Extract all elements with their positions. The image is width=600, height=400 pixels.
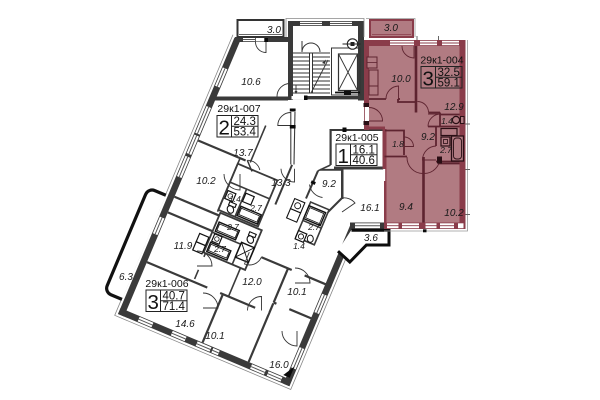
svg-text:2.7: 2.7 — [439, 145, 452, 155]
svg-text:10.1: 10.1 — [205, 331, 224, 342]
svg-text:9.2: 9.2 — [322, 179, 336, 190]
svg-text:10.2: 10.2 — [444, 208, 464, 219]
svg-text:1.4: 1.4 — [229, 194, 241, 204]
svg-text:16.1: 16.1 — [360, 203, 379, 214]
svg-text:2: 2 — [218, 116, 229, 139]
svg-text:2.7: 2.7 — [226, 222, 239, 232]
svg-text:10.2: 10.2 — [196, 176, 216, 187]
svg-text:2.7: 2.7 — [307, 222, 320, 232]
svg-text:10.1: 10.1 — [287, 287, 306, 298]
svg-text:9.2: 9.2 — [421, 132, 435, 143]
svg-text:13.7: 13.7 — [233, 148, 253, 159]
svg-text:29к1-006: 29к1-006 — [145, 278, 188, 290]
svg-text:10.0: 10.0 — [391, 74, 411, 85]
svg-text:3.6: 3.6 — [364, 233, 378, 244]
svg-text:12.0: 12.0 — [242, 277, 262, 288]
svg-text:13.3: 13.3 — [271, 178, 291, 189]
svg-text:1.4: 1.4 — [441, 116, 453, 126]
svg-text:29к1-004: 29к1-004 — [420, 55, 463, 67]
svg-text:53.4: 53.4 — [234, 127, 257, 139]
svg-text:29к1-005: 29к1-005 — [335, 132, 378, 144]
svg-text:12.9: 12.9 — [444, 102, 464, 113]
svg-text:2.7: 2.7 — [249, 203, 262, 213]
svg-text:40.6: 40.6 — [353, 155, 375, 167]
svg-text:2.7: 2.7 — [213, 244, 226, 254]
svg-text:3.0: 3.0 — [267, 25, 281, 36]
svg-text:3: 3 — [147, 291, 158, 314]
svg-text:1.8: 1.8 — [392, 139, 404, 149]
svg-text:3.0: 3.0 — [384, 23, 398, 34]
svg-text:29к1-007: 29к1-007 — [217, 103, 260, 115]
svg-text:10.6: 10.6 — [241, 77, 261, 88]
svg-text:59.1: 59.1 — [438, 78, 460, 90]
svg-text:1: 1 — [337, 145, 348, 168]
svg-text:71.4: 71.4 — [163, 301, 186, 313]
svg-text:14.6: 14.6 — [175, 319, 195, 330]
svg-text:16.0: 16.0 — [269, 360, 289, 371]
svg-text:1.4: 1.4 — [293, 241, 305, 251]
svg-text:3: 3 — [422, 67, 433, 90]
svg-text:6.3: 6.3 — [119, 272, 133, 283]
svg-text:11.9: 11.9 — [174, 241, 193, 252]
svg-text:9.4: 9.4 — [399, 202, 413, 213]
